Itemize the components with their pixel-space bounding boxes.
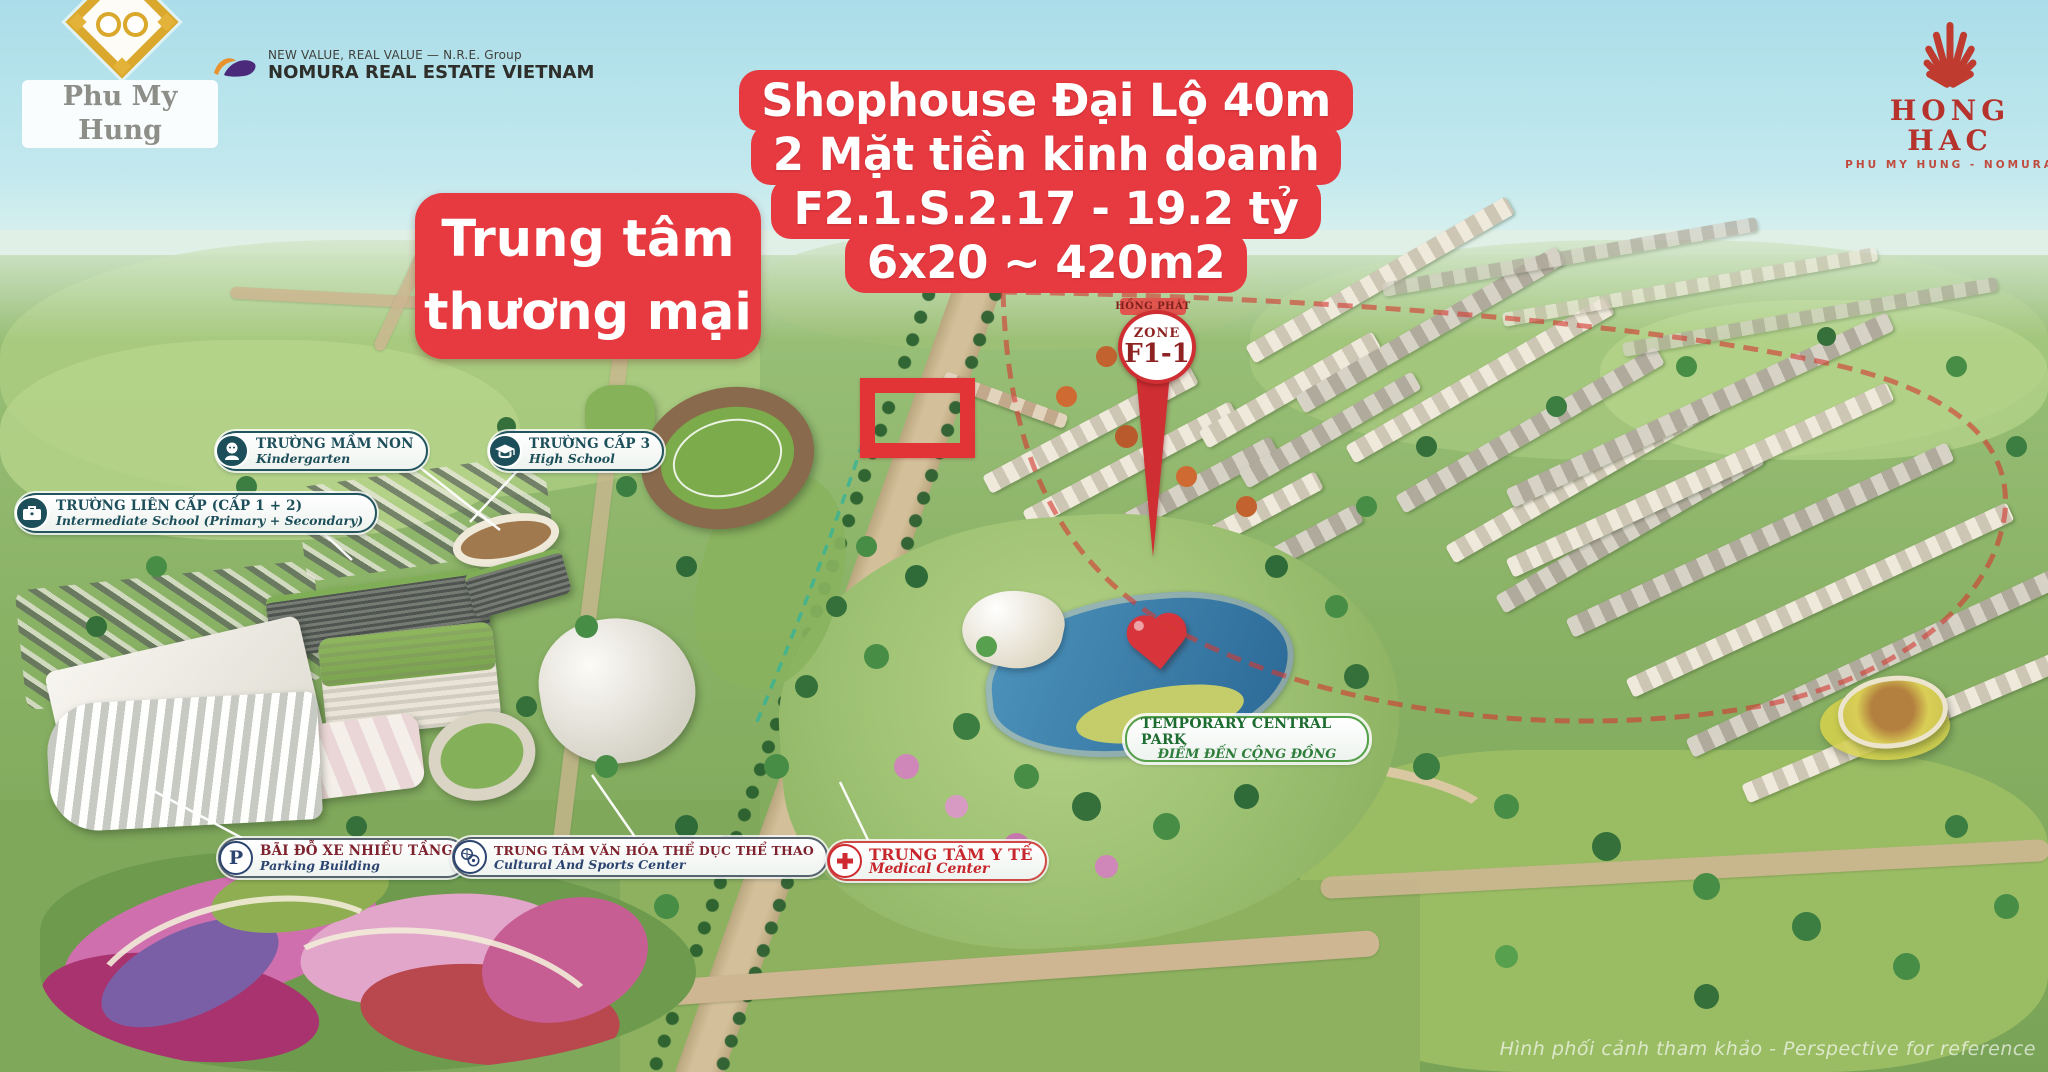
shophouse-banner: Shophouse Đại Lộ 40m 2 Mặt tiền kinh doa… [808,70,1284,293]
label-kindergarten: TRƯỜNG MẦM NONKindergarten [216,431,428,471]
nomura-name: NOMURA REAL ESTATE VIETNAM [268,62,594,83]
pin-tail [1135,362,1171,557]
label-subtitle: High School [529,452,650,465]
label-subtitle: Cultural And Sports Center [494,858,814,871]
label-sports-center: TRUNG TÂM VĂN HÓA THỂ DỤC THỂ THAOCultur… [452,837,828,877]
heart-sculpture [1122,603,1192,669]
banner-line: F2.1.S.2.17 - 19.2 tỷ [771,178,1320,239]
banner-line: 2 Mặt tiền kinh doanh [751,124,1342,185]
label-title: TRUNG TÂM VĂN HÓA THỂ DỤC THỂ THAO [494,843,814,858]
label-title: BÃI ĐỖ XE NHIỀU TẦNG [260,844,453,859]
label-subtitle: Parking Building [260,859,453,872]
banner-line: thương mại [424,276,752,349]
cloud-motif-icon [96,4,148,44]
hong-hac-wordmark: HONG HAC [1842,96,2048,156]
label-subtitle: Kindergarten [256,452,414,465]
label-intermediate-school: TRƯỜNG LIÊN CẤP (CẤP 1 + 2)Intermediate … [16,493,377,533]
watermark: Hình phối cảnh tham khảo - Perspective f… [1500,1038,2036,1060]
phu-my-hung-logo: Phu My Hung [22,0,222,120]
phu-my-hung-wordmark: Phu My Hung [22,80,218,148]
phoenix-fan-icon [1902,6,1998,90]
label-temporary-central-park: TEMPORARY CENTRAL PARK ĐIỂM ĐẾN CỘNG ĐỒN… [1125,716,1369,762]
hong-hac-subtitle: PHU MY HUNG - NOMURA [1842,159,2048,171]
label-high-school: TRƯỜNG CẤP 3High School [489,431,664,471]
nomura-tagline: NEW VALUE, REAL VALUE — N.R.E. Group [268,48,594,62]
medical-cross-icon [828,844,862,878]
nomura-logo: NEW VALUE, REAL VALUE — N.R.E. Group NOM… [212,48,594,83]
briefcase-icon [15,496,49,530]
highlight-rectangle [860,378,975,458]
hong-hac-logo: HONG HAC PHU MY HUNG - NOMURA [1842,6,2048,171]
label-title: TEMPORARY CENTRAL PARK [1127,716,1367,748]
nomura-swoosh-icon [212,49,260,83]
parking-icon: P [219,841,253,875]
baby-icon [215,434,249,468]
label-subtitle: Intermediate School (Primary + Secondary… [56,514,363,527]
label-parking: P BÃI ĐỖ XE NHIỀU TẦNGParking Building [218,838,467,878]
label-subtitle: Medical Center [869,863,1033,876]
graduation-cap-icon [488,434,522,468]
banner-line: Shophouse Đại Lộ 40m [739,70,1352,131]
commercial-center-banner: Trung tâm thương mại [415,193,761,359]
label-subtitle: ĐIỂM ĐẾN CỘNG ĐỒNG [1158,748,1337,762]
label-title: TRƯỜNG CẤP 3 [529,437,650,452]
label-medical-center: TRUNG TÂM Y TẾMedical Center [827,841,1047,881]
pin-badge: ZONE F1-1 [1118,310,1196,384]
banner-line: 6x20 ~ 420m2 [845,232,1247,293]
sports-balls-icon [453,840,487,874]
banner-line: Trung tâm [441,203,734,276]
pin-lot-text: F1-1 [1124,341,1189,367]
tree-clusters [0,0,13,13]
label-title: TRƯỜNG MẦM NON [256,437,414,452]
parking-building [45,691,323,833]
marketing-aerial-render: HỒNG PHÁT ZONE F1-1 Shophouse Đại Lộ 40m… [0,0,2048,1072]
label-title: TRƯỜNG LIÊN CẤP (CẤP 1 + 2) [56,499,363,514]
